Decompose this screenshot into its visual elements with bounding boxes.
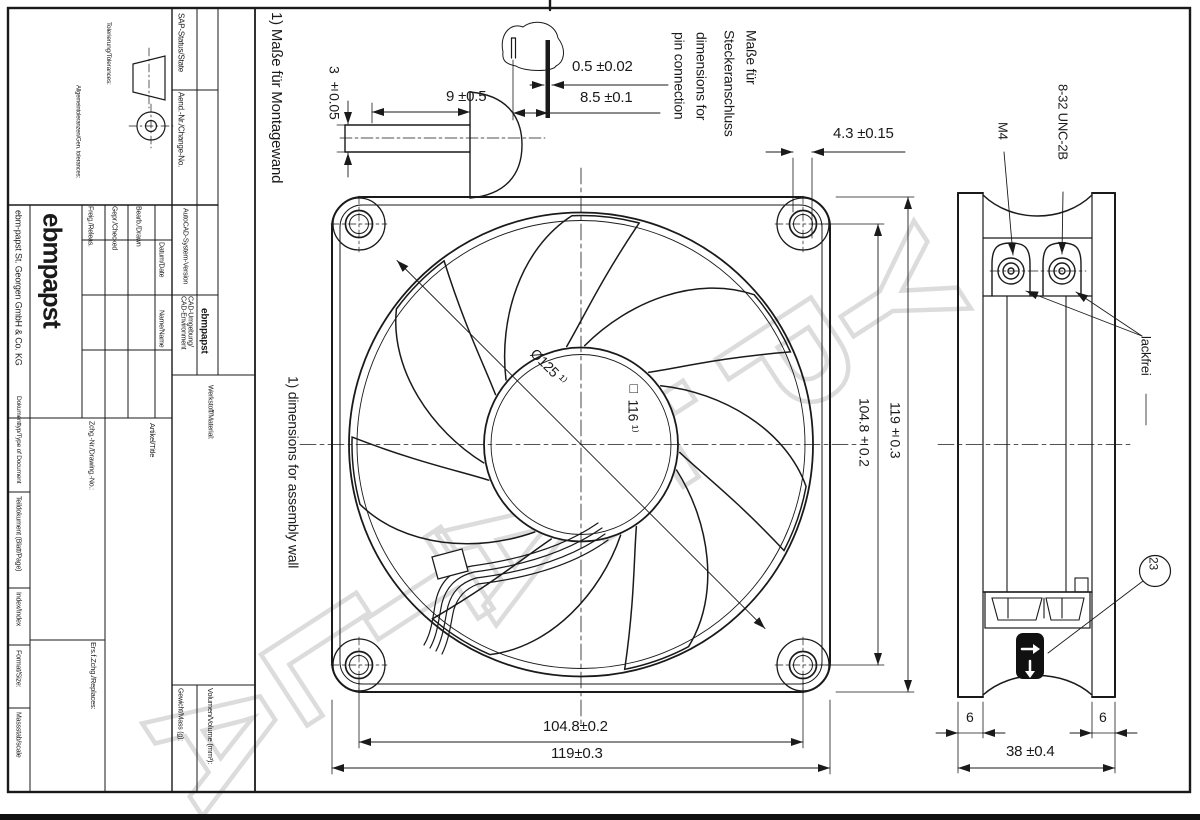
company-logo: ebmpapst	[38, 213, 65, 328]
tb-company: ebm-papst St. Georgen GmbH & Co. KG	[13, 210, 22, 366]
dim-hole-pitch-right: 104.8±0.2	[857, 398, 872, 467]
tb-replaces: Ers.f.Zchg./Replaces:	[89, 642, 97, 710]
tb-drawn: Bearb./Drawn	[134, 206, 141, 246]
screw-bosses	[992, 243, 1081, 296]
tb-scale: Massstab/scale	[14, 712, 21, 757]
note-pin-de-1: Maße für	[744, 30, 759, 84]
dim-stud-len: 9 ±0.5	[446, 89, 486, 105]
label-unc: 8-32 UNC-2B	[1056, 84, 1070, 160]
tb-mass: Gewicht/Mass (g):	[176, 688, 183, 741]
dim-frame-size-bottom: 119±0.3	[551, 746, 603, 762]
tb-drawing-no: Zchg.-Nr./Drawing.-No.:	[87, 421, 94, 490]
dim-pin-pitch: 8.5 ±0.1	[580, 90, 633, 106]
dim-flange-left: 6	[966, 710, 974, 725]
note-pin-de-2: Steckeranschluss	[722, 30, 737, 137]
tb-sap-status: SAP-Status/State	[176, 13, 184, 72]
dim-wall-square: □ 116 ¹⁾	[626, 380, 641, 433]
tb-doc-type: Dokumenttyp/Type of Document	[14, 396, 21, 483]
dim-frame-size-right: 119±0.3	[888, 402, 903, 458]
tb-checked: Gepr./Checked	[110, 206, 117, 250]
dim-depth: 38 ±0.4	[1006, 744, 1055, 760]
tb-title: Artikel/Title	[148, 423, 156, 457]
dim-stud-dia: 3 ±0.05	[327, 66, 342, 120]
tb-gen-tolerances: Allgemeintoleranzen/Gen. tolerances:	[74, 85, 80, 178]
tb-released: Freig./Releas.	[86, 206, 93, 247]
tb-date: Datum/Date	[157, 242, 164, 277]
note-assembly-de: 1) Maße für Montagewand	[268, 12, 284, 183]
tb-cad-env: CAD-Umgebung/ CAD-Environment	[179, 296, 194, 349]
tb-tolerances: Tolerierung/Tolerances:	[104, 22, 111, 85]
tb-change-no: Aend.-Nr./Change-No.	[176, 92, 184, 167]
balloon-label: 23	[1147, 557, 1160, 570]
tb-index: Index/Index	[14, 592, 21, 626]
label-m4: M4	[996, 122, 1010, 140]
dim-hole-dia: 4.3 ±0.15	[833, 126, 894, 142]
airflow-direction-badge	[1016, 633, 1044, 679]
terminal-block	[983, 578, 1092, 628]
tb-cad-env-value: ebmpapst	[198, 308, 209, 354]
tb-autocad: AutoCAD-System-Version	[181, 208, 188, 284]
tb-part-doc: Teildokument (Blatt/Page)	[14, 496, 21, 571]
tb-volume: Volumen/Volume (mm³):	[206, 688, 214, 764]
projection-symbol	[129, 48, 173, 148]
detail-pins	[502, 22, 563, 120]
dim-flange-right: 6	[1099, 710, 1107, 725]
note-pin-en-1: dimensions for	[694, 32, 709, 120]
tb-material: Werkstoff/Material:	[206, 385, 213, 439]
tb-format: Format/Size:	[14, 650, 21, 687]
tb-name: Name/Name	[157, 310, 164, 348]
dim-hole-pitch-bottom: 104.8±0.2	[543, 719, 608, 735]
note-assembly-en: 1) dimensions for assembly wall	[286, 376, 301, 568]
scan-edge	[0, 814, 1200, 820]
label-lackfrei: lackfrei	[1139, 336, 1153, 376]
dim-pin-thk: 0.5 ±0.02	[572, 59, 633, 75]
note-pin-en-2: pin connection	[672, 32, 687, 120]
drawing-sheet: ALTAE.PY	[0, 0, 1200, 820]
detail-stud	[340, 92, 545, 198]
